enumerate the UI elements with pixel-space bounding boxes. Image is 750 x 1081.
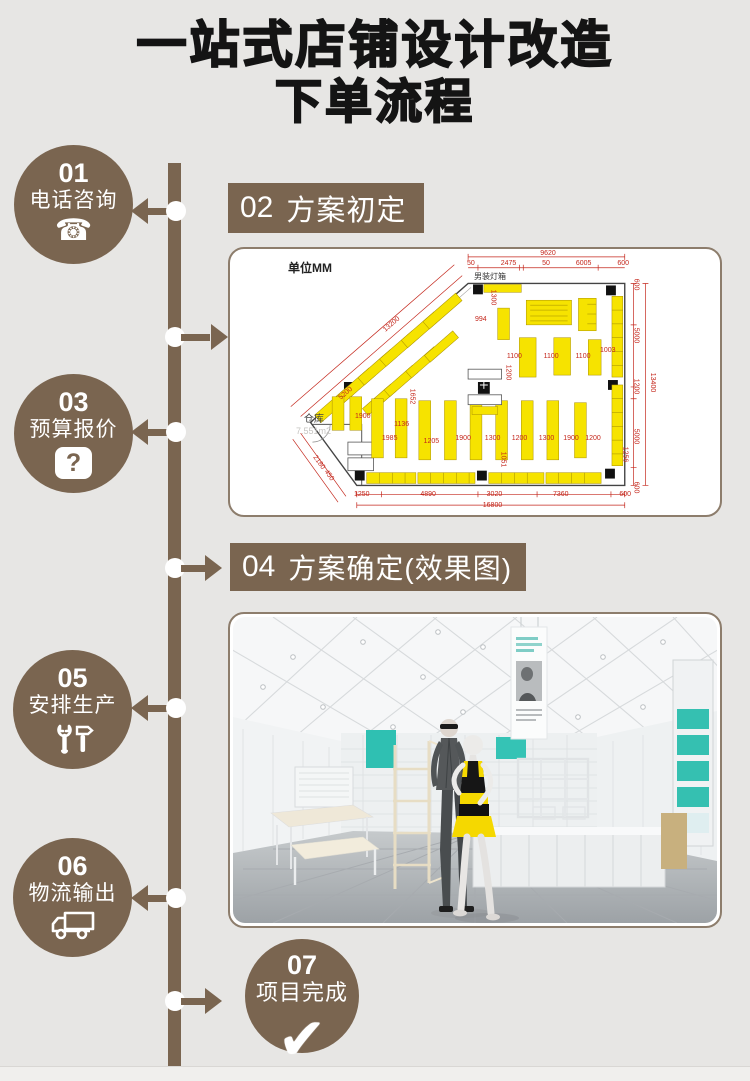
step-number: 04	[242, 550, 275, 584]
shelf-dim-label: 1200	[504, 364, 511, 380]
shelf-dim-label: 1136	[394, 421, 409, 428]
arrow-right-icon	[211, 324, 228, 350]
teal-panel-left	[366, 730, 396, 768]
truck-icon	[48, 910, 98, 942]
step-circle-05: 05 安排生产	[13, 650, 132, 769]
timeline-line	[168, 163, 181, 1067]
step-circle-01: 01 电话咨询 ☎	[14, 145, 133, 264]
step-circle-03: 03 预算报价 ?	[14, 374, 133, 493]
infographic-page: 一站式店铺设计改造 下单流程 01 电话咨询 ☎ 03 预算报价 ? 05 安排…	[0, 0, 750, 1081]
shelf-dim-label: 1100	[544, 353, 559, 360]
teal-panel-center	[496, 737, 526, 759]
title-line-1: 一站式店铺设计改造	[0, 16, 750, 74]
shelf-dim-label: 1300	[489, 290, 496, 306]
footer-strip	[0, 1066, 750, 1081]
step-label: 物流输出	[13, 881, 132, 907]
step-circle-06: 06 物流输出	[13, 838, 132, 957]
shelf-dim-label: 1300	[539, 435, 555, 442]
phone-icon: ☎	[14, 214, 133, 248]
timeline-dot	[166, 201, 186, 221]
shelf-dim-label: 1051	[499, 452, 506, 468]
title-line-2: 下单流程	[0, 74, 750, 130]
step-header-04: 04 方案确定(效果图)	[230, 543, 526, 591]
step-number: 01	[14, 158, 133, 188]
shelf-dim-label: 1205	[424, 438, 440, 445]
shelf-dim-label: 994	[475, 316, 487, 323]
tools-icon	[50, 722, 96, 758]
floorplan-card: 单位MM 男装灯箱 仓库 7.551m2 9620 50247550600560…	[228, 247, 722, 517]
shelf-dim-label: 1900	[563, 435, 579, 442]
step-number: 02	[240, 191, 273, 225]
shelf-dim-label: 1100	[507, 353, 522, 360]
step-label: 预算报价	[14, 417, 133, 443]
shelf-dim-label: 1256	[621, 447, 628, 463]
rendering-photo-card	[228, 612, 722, 928]
timeline-dot	[166, 888, 186, 908]
step-title: 方案确定(效果图)	[288, 547, 512, 587]
shelf-dim-label: 1100	[575, 353, 590, 360]
step-label: 项目完成	[245, 980, 359, 1006]
step-number: 03	[14, 387, 133, 417]
connector-step-06	[131, 885, 186, 911]
shelf-dim-label: 1300	[485, 435, 501, 442]
connector-step-02	[165, 324, 228, 350]
floorplan-drawing: 单位MM 男装灯箱 仓库 7.551m2 9620 50247550600560…	[230, 249, 720, 515]
step-circle-07: 07 项目完成 ✔	[245, 939, 359, 1053]
connector-step-07	[165, 988, 222, 1014]
step-number: 07	[245, 950, 359, 980]
hanging-poster	[511, 617, 547, 739]
connector-step-03	[131, 419, 186, 445]
arrow-shaft	[181, 334, 210, 341]
step-label: 安排生产	[13, 693, 132, 719]
shelf-dim-label: 1003	[600, 347, 616, 354]
plan-shelf-dims: 1300994110011001100100312001652190011361…	[230, 249, 720, 515]
shelf-dim-label: 1900	[455, 435, 471, 442]
connector-step-05	[131, 695, 186, 721]
step-number: 06	[13, 851, 132, 881]
shelf-dim-label: 1200	[512, 435, 528, 442]
connector-step-04	[165, 555, 222, 581]
step-label: 电话咨询	[14, 188, 133, 214]
shelf-dim-label: 1985	[382, 435, 398, 442]
check-icon: ✔	[278, 1011, 327, 1069]
arrow-right-icon	[205, 555, 222, 581]
store-rendering-image	[233, 617, 717, 923]
connector-step-01	[131, 198, 186, 224]
arrow-right-icon	[205, 988, 222, 1014]
shelf-dim-label: 1900	[355, 413, 371, 420]
shelf-dim-label: 1652	[408, 388, 415, 404]
gold-box	[661, 813, 687, 869]
step-title: 方案初定	[286, 187, 406, 229]
page-title: 一站式店铺设计改造 下单流程	[0, 16, 750, 130]
timeline-dot	[166, 698, 186, 718]
step-header-02: 02 方案初定	[228, 183, 424, 233]
question-icon: ?	[55, 447, 92, 479]
timeline-dot	[166, 422, 186, 442]
step-number: 05	[13, 663, 132, 693]
shelf-dim-label: 1200	[585, 435, 601, 442]
